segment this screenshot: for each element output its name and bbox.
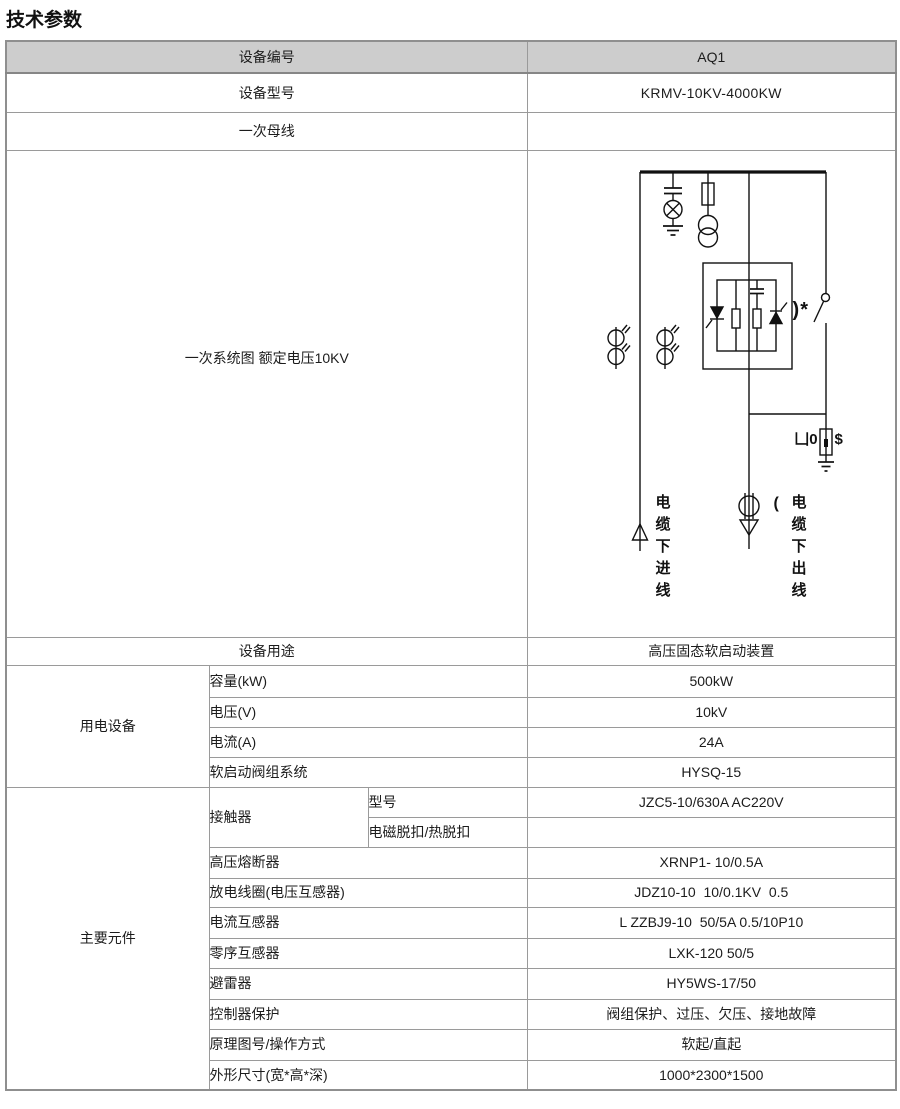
row-value: JZC5-10/630A AC220V (527, 787, 896, 817)
disconnect-switch (814, 172, 830, 414)
row-label: 控制器保护 (209, 999, 527, 1029)
row-label: 容量(kW) (209, 665, 527, 697)
row-value: L ZZBJ9-10 50/5A 0.5/10P10 (527, 907, 896, 938)
incoming-cable-label: 电缆下进线 (654, 494, 671, 604)
table-row: 主要元件 接触器 型号 JZC5-10/630A AC220V (6, 787, 896, 817)
row-label: 外形尺寸(宽*高*深) (209, 1060, 527, 1090)
row-value: XRNP1- 10/0.5A (527, 847, 896, 878)
row-value (527, 112, 896, 150)
row-value: 软起/直起 (527, 1029, 896, 1060)
diagram-caption: 一次系统图 额定电压10KV (6, 150, 527, 637)
single-line-diagram-cell: )* 凵0 $ 电缆下进线 ( 电缆下出线 (527, 150, 896, 637)
row-label: 放电线圈(电压互感器) (209, 878, 527, 907)
row-value: 1000*2300*1500 (527, 1060, 896, 1090)
table-row: 设备型号 KRMV-10KV-4000KW (6, 73, 896, 112)
circuit-svg (528, 151, 896, 637)
table-row: 设备编号 AQ1 (6, 41, 896, 73)
single-line-diagram: )* 凵0 $ 电缆下进线 ( 电缆下出线 (528, 151, 896, 637)
row-value: HYSQ-15 (527, 757, 896, 787)
arrester-right-label: $ (835, 431, 843, 448)
outgoing-cable-label: 电缆下出线 (790, 494, 807, 604)
group-label: 主要元件 (6, 787, 209, 1090)
row-label: 电磁脱扣/热脱扣 (368, 817, 527, 847)
row-label: 设备用途 (6, 637, 527, 665)
row-value: 高压固态软启动装置 (527, 637, 896, 665)
spec-table: 设备编号 AQ1 设备型号 KRMV-10KV-4000KW 一次母线 一次系统… (5, 40, 897, 1091)
row-value: 24A (527, 727, 896, 757)
table-row: 一次母线 (6, 112, 896, 150)
row-label: 电流(A) (209, 727, 527, 757)
voltage-indicator-branch (663, 172, 683, 235)
row-label: 设备型号 (6, 73, 527, 112)
row-value: AQ1 (527, 41, 896, 73)
row-label: 电压(V) (209, 697, 527, 727)
row-label: 零序互感器 (209, 938, 527, 968)
row-value: 500kW (527, 665, 896, 697)
arrester-left-label: 凵0 (791, 431, 818, 448)
pt-fuse-branch (698, 172, 717, 247)
row-label: 电流互感器 (209, 907, 527, 938)
table-row: 设备用途 高压固态软启动装置 (6, 637, 896, 665)
row-value: HY5WS-17/50 (527, 968, 896, 999)
row-value: JDZ10-10 10/0.1KV 0.5 (527, 878, 896, 907)
table-row: 用电设备 容量(kW) 500kW (6, 665, 896, 697)
diagram-row: 一次系统图 额定电压10KV (6, 150, 896, 637)
row-label: 高压熔断器 (209, 847, 527, 878)
row-label: 原理图号/操作方式 (209, 1029, 527, 1060)
outgoing-paren: ( (774, 495, 779, 513)
contactor-label: 接触器 (209, 787, 368, 847)
row-value: 阀组保护、过压、欠压、接地故障 (527, 999, 896, 1029)
row-value: KRMV-10KV-4000KW (527, 73, 896, 112)
row-label: 型号 (368, 787, 527, 817)
row-value (527, 817, 896, 847)
page-title: 技术参数 (6, 5, 82, 32)
thyristor-module (703, 263, 792, 369)
row-label: 软启动阀组系统 (209, 757, 527, 787)
row-value: 10kV (527, 697, 896, 727)
row-value: LXK-120 50/5 (527, 938, 896, 968)
row-label: 设备编号 (6, 41, 527, 73)
row-label: 避雷器 (209, 968, 527, 999)
current-transformers (608, 325, 679, 369)
switch-mark-label: )* (793, 299, 809, 322)
group-label: 用电设备 (6, 665, 209, 787)
row-label: 一次母线 (6, 112, 527, 150)
